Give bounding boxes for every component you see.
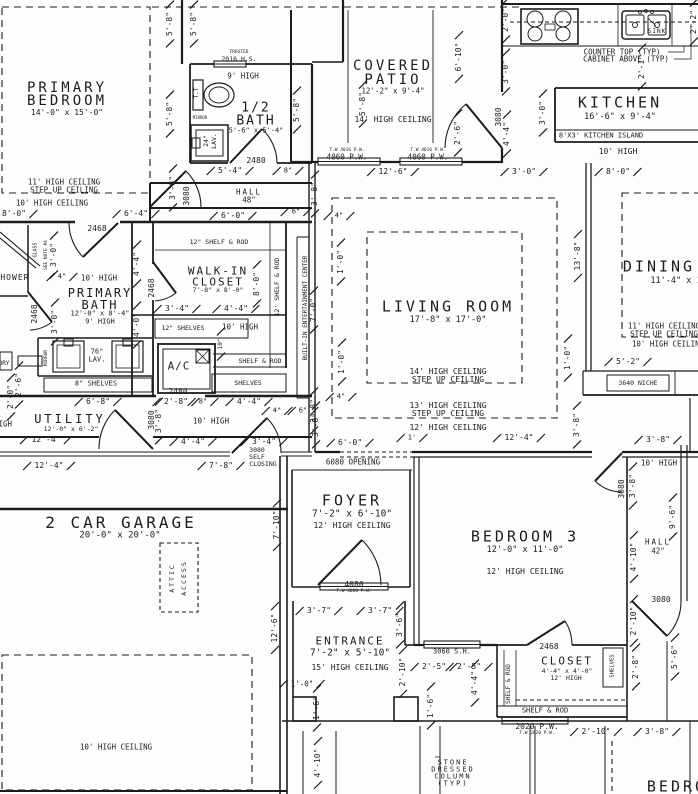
dimension-label: 1'-0" <box>337 250 345 274</box>
room-dims-foyer: 7'-2" x 6'-10" <box>312 509 392 519</box>
room-title-primary-bedroom: BEDROOM <box>27 94 107 108</box>
sink-label: SINK <box>648 29 666 35</box>
dimension-label: 7'-0" <box>310 298 318 322</box>
room-title-dining: DINING <box>623 260 695 275</box>
shower-label: SHOWER <box>0 274 29 282</box>
dimension-label: 5'-8" <box>359 92 367 116</box>
dimension-label: 9'-6" <box>669 505 677 529</box>
dimension-label: 12'-6" <box>271 614 279 643</box>
dimension-label: 3'-8" <box>312 413 320 437</box>
dimension-label: 6" <box>292 209 300 216</box>
ceiling-note: 10' HIGH <box>193 417 229 425</box>
dimension-label: 6" <box>299 408 307 415</box>
dimension-label: 2'-0" <box>7 385 15 409</box>
ceiling-note: 9' HIGH <box>85 319 115 326</box>
dimension-label: 4'-10" <box>314 749 322 778</box>
dimension-label: 8'-0" <box>2 210 26 218</box>
door-size-label: 3080 <box>651 596 670 604</box>
door-size-label: 2468 <box>148 278 156 297</box>
dimension-label: 1' <box>408 435 416 442</box>
dimension-label: 2'-0" <box>502 8 510 32</box>
dimension-label: 3'-0" <box>50 243 58 267</box>
attic-access-label: ATTIC <box>169 563 176 593</box>
ceiling-note: 12' HIGH CEILING <box>409 424 486 432</box>
dimension-label: 10" <box>218 339 224 350</box>
window-size-label: 3060 S.H. <box>433 649 471 656</box>
hall-label: 48" <box>242 196 256 204</box>
room-title-living-room: LIVING ROOM <box>382 300 514 315</box>
room-title-covered-patio: COVERED <box>353 59 433 73</box>
ceiling-note: 12' HIGH <box>550 675 581 682</box>
shelf-note: 12' SHELF & ROD <box>274 258 281 317</box>
room-title-closet: CLOSET <box>541 656 593 667</box>
door-size-label: 3080 <box>183 186 191 205</box>
dimension-label: 8'-0" <box>606 168 630 176</box>
dimension-label: 4'-0" <box>133 313 141 337</box>
room-title-covered-patio: PATIO <box>364 73 421 87</box>
hall-label: 42" <box>651 547 665 555</box>
floor-plan: PRIMARYBEDROOM14'-0" x 15'-0"11' HIGH CE… <box>0 0 698 794</box>
shelf-note: SHELF & ROD <box>522 708 568 715</box>
window-size-label: 2016 H.S. <box>221 56 256 63</box>
dimension-label: 6'-0" <box>338 439 362 447</box>
ceiling-note: STEP UP CEILING <box>412 376 484 384</box>
cabinet-note: CABINET ABOVE (TYP) <box>583 55 669 63</box>
lav-label: 76" <box>91 349 104 356</box>
dimension-label: 1'-0" <box>564 346 572 370</box>
ceiling-note: 10' HIGH <box>599 148 638 156</box>
room-title-utility: UTILITY <box>34 413 106 425</box>
ceiling-note: STEP UP CEILING <box>30 186 98 194</box>
room-title-garage: 2 CAR GARAGE <box>45 515 197 531</box>
dimension-label: 6'-0" <box>221 212 245 220</box>
lav-label: LAV. <box>89 357 106 364</box>
hall-label: HALL <box>645 538 671 546</box>
shelf-note: SHELF & ROD <box>238 358 281 365</box>
ceiling-note: STEP UP CEILING <box>412 410 484 418</box>
stone-column-note: (TYP) <box>437 781 468 788</box>
dimension-label: 3'-8" <box>155 409 163 433</box>
annotation-layer: PRIMARYBEDROOM14'-0" x 15'-0"11' HIGH CE… <box>0 0 698 794</box>
dimension-label: 3'-8" <box>311 182 319 206</box>
room-dims-half-bath: 5'-6" x 5'-4" <box>229 128 284 135</box>
dimension-label: 5'-2" <box>616 358 640 366</box>
dimension-label: 4" <box>58 274 66 281</box>
room-dims-dining: 11'-4" x 1 <box>650 277 698 286</box>
dimension-label: 2'-1" <box>638 55 646 79</box>
dimension-label: 3'-0" <box>539 101 547 125</box>
window-size-label: 4060 P.W. <box>327 153 368 161</box>
dimension-label: 4'-4" <box>237 398 261 406</box>
dimension-label: 2'-8" <box>632 655 640 679</box>
dimension-label: 3'-8" <box>169 176 177 200</box>
room-dims-bedroom-3: 12'-0" x 11'-0" <box>487 546 564 555</box>
dimension-label: 4'-4" <box>471 671 479 695</box>
room-dims-covered-patio: 12'-2" x 9'-4" <box>361 87 424 95</box>
dimension-label: 3'-8" <box>629 474 637 498</box>
door-size-label: 2468 <box>539 643 558 651</box>
dimension-label: 5'-6" <box>671 645 679 669</box>
lav-label: LAV. <box>211 133 218 149</box>
dimension-label: 5'-8" <box>166 12 174 36</box>
attic-access-label: ACCESS <box>181 560 188 595</box>
opening-label: 6080 OPENING <box>326 458 380 466</box>
dimension-label: 2'-10" <box>399 658 407 687</box>
window-size-label: T.W 4080 P.W. <box>336 590 371 595</box>
dimension-label: 7'-10" <box>273 511 281 540</box>
dimension-label: 5'-8" <box>166 102 174 126</box>
dimension-label: 12'-4" <box>505 434 534 442</box>
lav-label: 24" <box>203 135 210 147</box>
dimension-label: 1'-6" <box>427 694 435 718</box>
dimension-label: 4" <box>337 394 345 401</box>
dryer-label: DRY <box>0 361 9 367</box>
room-title-entrance: ENTRANCE <box>316 636 385 647</box>
dimension-label: 8" <box>199 399 207 406</box>
room-dims-primary-bath: 12'-0" x 8'-4" <box>70 311 129 318</box>
room-title-kitchen: KITCHEN <box>578 96 662 111</box>
ceiling-note: 10' HIGH <box>81 274 117 282</box>
dimension-label: 4'-4" <box>133 252 141 276</box>
dimension-label: 12'-6" <box>379 168 408 176</box>
ceiling-note: 12' HIGH CEILING <box>486 568 563 576</box>
dimension-label: 3'-0" <box>502 60 510 84</box>
ceiling-note: 10' HIGH <box>0 420 12 428</box>
niche-label: 3640 NICHE <box>618 380 657 387</box>
door-size-label: 2468 <box>87 225 106 233</box>
dimension-label: 5'-8" <box>293 98 301 122</box>
ceiling-note: 10' HIGH CEILING <box>80 743 152 751</box>
dimension-label: 3'-6" <box>396 613 404 637</box>
dimension-label: 2'-10" <box>630 607 638 636</box>
room-dims-entrance: 7'-2" x 5'-10" <box>310 648 390 658</box>
dimension-label: 13'-8" <box>574 242 582 271</box>
shelf-note: 12" SHELF & ROD <box>190 239 249 246</box>
room-title-bedroom-3: BEDROOM 3 <box>471 530 579 545</box>
door-size-label: 3080 <box>618 479 626 498</box>
dimension-label: 4" <box>273 408 281 415</box>
ceiling-note: 14' HIGH CEILING <box>354 116 431 124</box>
shelf-note: 8" SHELVES <box>75 381 117 388</box>
room-title-foyer: FOYER <box>322 494 382 509</box>
door-size-label: 2480 <box>246 157 265 165</box>
dimension-label: 3'-7" <box>368 607 392 615</box>
toilet-label: T.T <box>194 88 200 99</box>
ceiling-note: 10' HIGH <box>641 459 677 467</box>
dimension-label: 3'-8" <box>645 728 669 736</box>
room-dims-living-room: 17'-8" x 17'-0" <box>410 316 487 325</box>
shelf-note: 12" SHELVES <box>161 325 204 332</box>
dimension-label: 3'-0" <box>51 310 59 334</box>
mirror-label: MIRROR <box>45 350 50 366</box>
shelf-note: SHELVES <box>234 380 261 387</box>
dimension-label: 3'-8" <box>573 413 581 437</box>
dimension-label: 6'-4" <box>124 210 148 218</box>
dimension-label: 1'-6" <box>313 696 321 720</box>
room-dims-primary-bedroom: 14'-0" x 15'-0" <box>31 109 103 117</box>
ceiling-note: 12' HIGH CEILING <box>313 522 390 530</box>
island-note: 8'X3' KITCHEN ISLAND <box>559 133 643 140</box>
dimension-label: 8'-0" <box>253 272 261 296</box>
ceiling-note: 15' HIGH CEILING <box>311 664 388 672</box>
dimension-label: 3'-7" <box>307 607 331 615</box>
ceiling-note: 9' HIGH <box>227 72 259 80</box>
dimension-label: 5'-8" <box>190 12 198 36</box>
room-dims-utility: 12'-0" x 6'-2" <box>44 426 99 433</box>
dimension-label: 4'-4" <box>224 305 248 313</box>
dimension-label: 12'-4" <box>35 462 64 470</box>
dimension-label: 3'-4" <box>165 305 189 313</box>
room-dims-kitchen: 16'-6" x 9'-4" <box>584 113 656 122</box>
room-dims-garage: 20'-0" x 20'-0" <box>79 532 160 541</box>
dimension-label: 2'-10" <box>582 728 611 736</box>
dimension-label: 3'-8" <box>646 436 670 444</box>
dimension-label: 2'-5" <box>457 663 481 671</box>
room-title-bedroom-partial: BEDROOM <box>647 780 698 794</box>
door-size-label: 2468 <box>31 304 39 323</box>
dimension-label: 6'-10" <box>455 43 463 72</box>
glass-note: GLASS <box>34 242 39 257</box>
shelf-note: SHELVES <box>610 654 616 677</box>
door-size-label: 2480 <box>168 388 187 396</box>
dimension-label: 2'-6" <box>15 373 23 397</box>
dimension-label: 4" <box>335 213 343 220</box>
dimension-label: 5'-4" <box>218 167 242 175</box>
dimension-label: 4'-10" <box>630 543 638 572</box>
dimension-label: 2'-6" <box>454 121 462 145</box>
ceiling-note: 10' HIGH <box>222 323 258 331</box>
dimension-label: 2'-5" <box>422 663 446 671</box>
window-size-label: T.W 2020 P.W. <box>519 732 554 737</box>
dimension-label: 8" <box>284 168 292 175</box>
dimension-label: 7'-8" <box>209 462 233 470</box>
shelf-note: SHELF & ROD <box>506 664 512 704</box>
ceiling-note: 10' HIGH CEILING <box>632 340 698 348</box>
dimension-label: 2'-8" <box>164 398 188 406</box>
ceiling-note: 10' HIGH CEILING <box>16 199 88 207</box>
ac-closet-label: A/C <box>168 361 191 372</box>
dimension-label: 6'-8" <box>86 398 110 406</box>
ceiling-note: STEP UP CEILING <box>630 330 698 338</box>
dimension-label: 4'-4" <box>181 438 205 446</box>
door-note: CLOSING <box>249 461 276 468</box>
window-size-label: 4060 P.W. <box>408 153 449 161</box>
dimension-label: 12'-4" <box>32 436 61 444</box>
mirror-label: MIRROR <box>193 116 207 120</box>
room-dims-walk-in-closet: 7'-8" x 8'-0" <box>193 287 244 294</box>
dimension-label: 1'-0" <box>338 350 346 374</box>
dimension-label: 1'-0" <box>291 680 314 688</box>
dimension-label: 4'-4" <box>503 122 511 146</box>
dimension-label: 2'-2" <box>690 10 698 34</box>
dimension-label: 3'-0" <box>512 168 536 176</box>
